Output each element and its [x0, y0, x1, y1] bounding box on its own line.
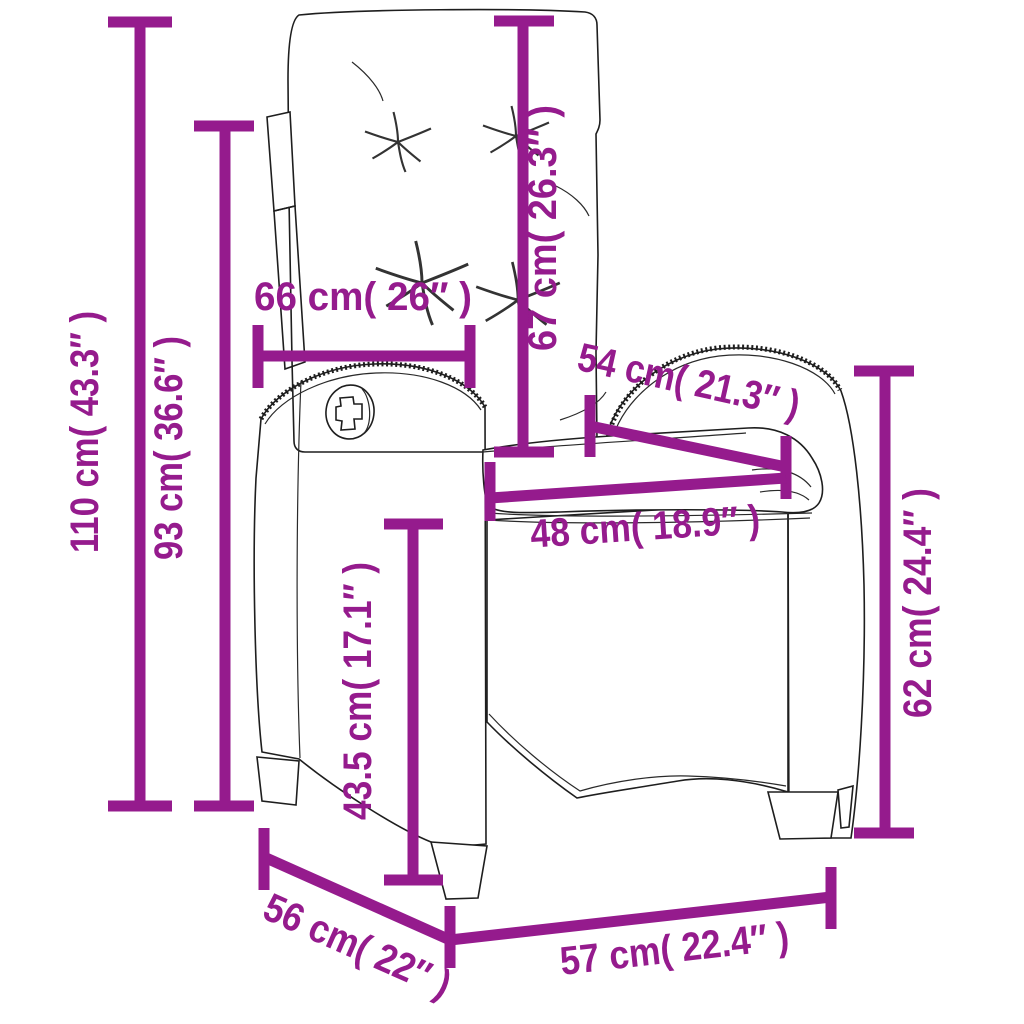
dim-seat-height-label: 43.5 cm( 17.1″ ) [336, 562, 380, 820]
dim-top-width-label: 66 cm( 26″ ) [254, 275, 472, 319]
front-right-leg [768, 792, 838, 839]
rear-left-leg [257, 757, 299, 805]
dim-back-cushion-height-label: 67 cm( 26.3″ ) [521, 105, 565, 351]
dim-total-height-label: 110 cm( 43.3″ ) [63, 311, 107, 553]
dim-backrest-height-label: 93 cm( 36.6″ ) [147, 336, 191, 560]
dim-side-height-label: 62 cm( 24.4″ ) [896, 488, 940, 718]
product-dimension-diagram: 110 cm( 43.3″ ) 93 cm( 36.6″ ) 66 cm( 26… [0, 0, 1024, 1024]
